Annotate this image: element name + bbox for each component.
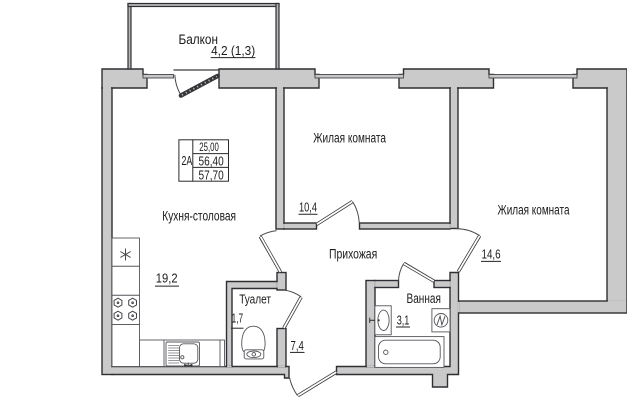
svg-text:4,2 (1,3): 4,2 (1,3) <box>211 43 255 58</box>
svg-text:Туалет: Туалет <box>239 292 271 306</box>
svg-text:56,40: 56,40 <box>199 154 224 169</box>
svg-text:10,4: 10,4 <box>299 199 317 214</box>
svg-text:1,7: 1,7 <box>232 311 244 326</box>
svg-text:Жилая комната: Жилая комната <box>313 131 386 146</box>
svg-text:Жилая комната: Жилая комната <box>498 202 570 217</box>
svg-text:2А: 2А <box>182 154 193 168</box>
svg-text:3,1: 3,1 <box>397 313 410 328</box>
svg-text:Кухня-столовая: Кухня-столовая <box>162 209 236 224</box>
svg-text:57,70: 57,70 <box>199 167 224 182</box>
svg-text:14,6: 14,6 <box>482 247 501 262</box>
svg-text:19,2: 19,2 <box>156 270 178 285</box>
svg-text:7,4: 7,4 <box>291 338 304 353</box>
svg-text:25,00: 25,00 <box>199 142 219 154</box>
svg-text:Прихожая: Прихожая <box>329 246 377 261</box>
svg-text:Ванная: Ванная <box>407 291 441 306</box>
